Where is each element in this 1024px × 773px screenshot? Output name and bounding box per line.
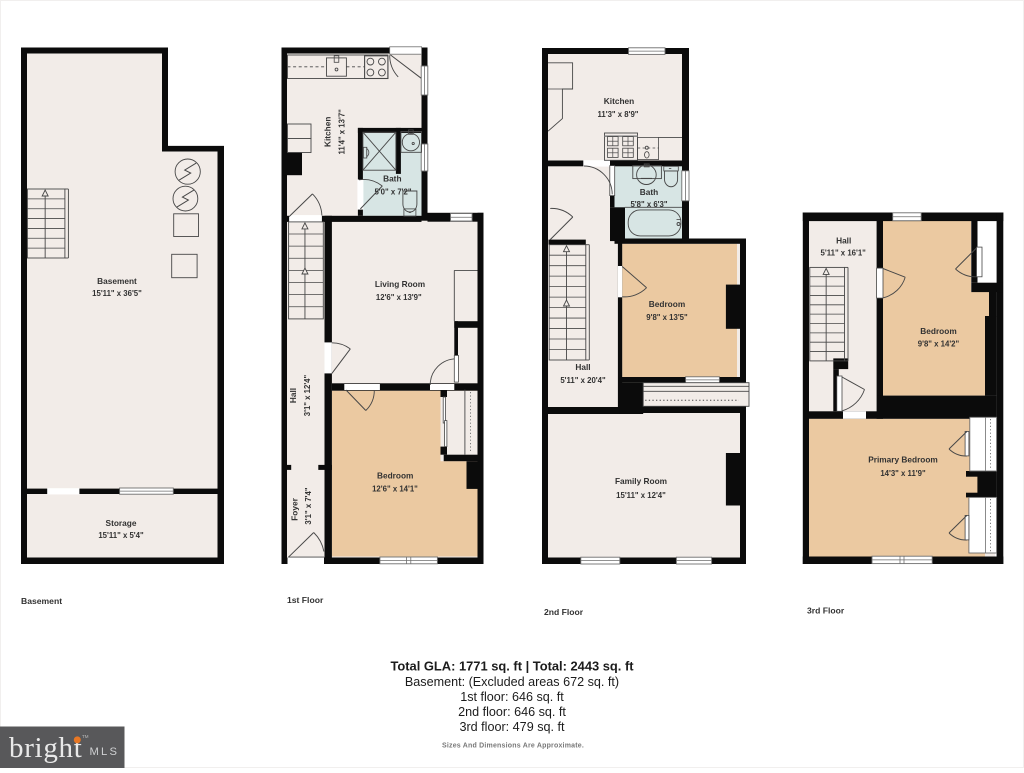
svg-text:2nd floor: 646 sq. ft: 2nd floor: 646 sq. ft [458,705,566,719]
svg-text:3rd floor: 479 sq. ft: 3rd floor: 479 sq. ft [459,720,565,734]
svg-text:Living Room: Living Room [375,279,425,289]
svg-text:12'6" x 13'9": 12'6" x 13'9" [376,293,422,302]
svg-text:MLS: MLS [90,746,120,758]
svg-text:2nd Floor: 2nd Floor [544,607,584,617]
svg-text:5'8" x 6'3": 5'8" x 6'3" [630,200,667,209]
svg-text:3'1" x 7'4": 3'1" x 7'4" [304,487,313,524]
svg-text:Bedroom: Bedroom [649,299,685,309]
svg-text:5'11" x 16'1": 5'11" x 16'1" [821,249,867,258]
svg-text:15'11" x 36'5": 15'11" x 36'5" [92,289,142,298]
svg-text:Bedroom: Bedroom [920,326,956,336]
svg-text:14'3" x 11'9": 14'3" x 11'9" [880,469,926,478]
svg-text:9'8" x 14'2": 9'8" x 14'2" [918,340,960,349]
svg-text:Total GLA: 1771 sq. ft | Total: Total GLA: 1771 sq. ft | Total: 2443 sq.… [390,659,634,674]
svg-text:Foyer: Foyer [290,497,300,520]
svg-text:Kitchen: Kitchen [604,96,634,106]
svg-text:5'0" x 7'2": 5'0" x 7'2" [374,188,411,197]
svg-text:bright: bright [9,732,82,764]
svg-text:15'11" x 12'4": 15'11" x 12'4" [616,491,666,500]
svg-text:Basement: (Excluded areas 672: Basement: (Excluded areas 672 sq. ft) [405,675,619,689]
svg-text:Bath: Bath [383,174,401,184]
svg-text:Bedroom: Bedroom [377,471,413,481]
svg-text:Kitchen: Kitchen [323,117,333,147]
svg-text:15'11" x 5'4": 15'11" x 5'4" [98,531,144,540]
svg-text:TM: TM [82,734,89,739]
svg-text:Hall: Hall [836,235,851,245]
svg-text:Bath: Bath [640,187,658,197]
svg-text:9'8" x 13'5": 9'8" x 13'5" [646,313,688,322]
svg-text:Sizes And Dimensions Are Appro: Sizes And Dimensions Are Approximate. [442,743,584,750]
svg-text:Family Room: Family Room [615,476,667,486]
svg-text:5'11" x 20'4": 5'11" x 20'4" [560,376,606,385]
svg-text:Hall: Hall [575,362,590,372]
svg-text:Primary Bedroom: Primary Bedroom [868,454,938,464]
svg-text:1st floor: 646 sq. ft: 1st floor: 646 sq. ft [460,690,564,704]
svg-text:Basement: Basement [97,276,137,286]
svg-text:11'4" x 13'7": 11'4" x 13'7" [338,109,347,155]
svg-text:Hall: Hall [288,388,298,403]
svg-text:1st Floor: 1st Floor [287,595,324,605]
svg-text:Storage: Storage [106,518,137,528]
svg-text:12'6" x 14'1": 12'6" x 14'1" [372,485,418,494]
svg-text:3rd Floor: 3rd Floor [807,606,845,616]
svg-text:11'3" x 8'9": 11'3" x 8'9" [597,110,638,119]
svg-text:3'1" x 12'4": 3'1" x 12'4" [303,374,312,416]
svg-text:Basement: Basement [21,596,62,606]
